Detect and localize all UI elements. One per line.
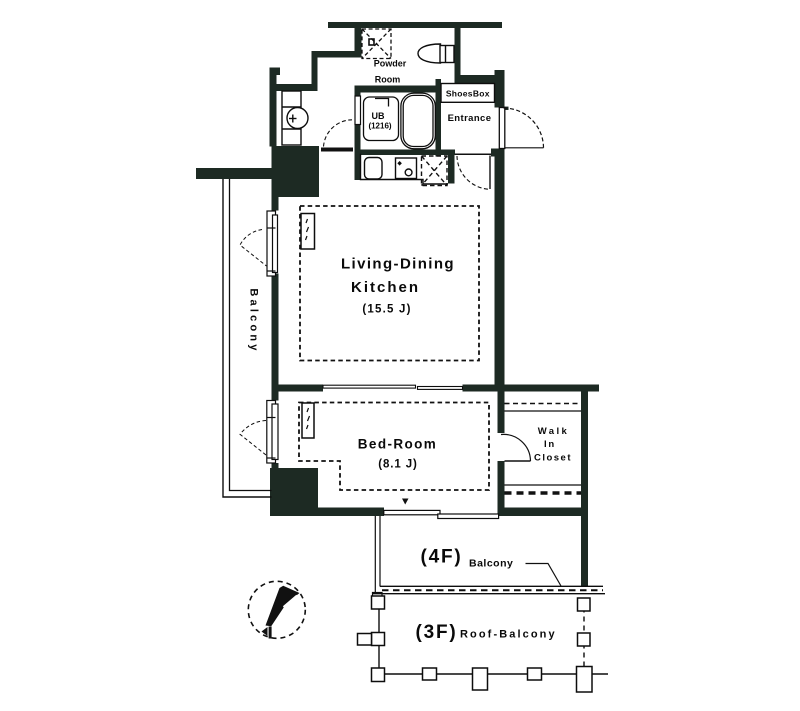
- svg-text:In: In: [544, 439, 556, 450]
- svg-text:Walk: Walk: [538, 426, 569, 437]
- svg-text:Room: Room: [375, 74, 401, 84]
- svg-text:Closet: Closet: [534, 453, 572, 464]
- svg-text:Kitchen: Kitchen: [351, 279, 420, 296]
- svg-text:Balcony: Balcony: [248, 288, 260, 353]
- svg-text:(8.1 J): (8.1 J): [378, 458, 418, 470]
- svg-text:Balcony: Balcony: [469, 558, 513, 570]
- svg-text:Living-Dining: Living-Dining: [341, 256, 455, 273]
- svg-text:(3F): (3F): [416, 622, 458, 643]
- svg-text:UB: UB: [372, 111, 385, 121]
- svg-text:Roof-Balcony: Roof-Balcony: [460, 629, 557, 641]
- svg-text:ShoesBox: ShoesBox: [446, 88, 490, 98]
- svg-text:Entrance: Entrance: [448, 113, 492, 124]
- svg-text:Bed-Room: Bed-Room: [358, 437, 437, 452]
- svg-text:(1216): (1216): [368, 121, 391, 130]
- svg-text:Powder: Powder: [374, 59, 407, 69]
- svg-text:(4F): (4F): [421, 547, 463, 568]
- svg-text:(15.5 J): (15.5 J): [362, 303, 411, 315]
